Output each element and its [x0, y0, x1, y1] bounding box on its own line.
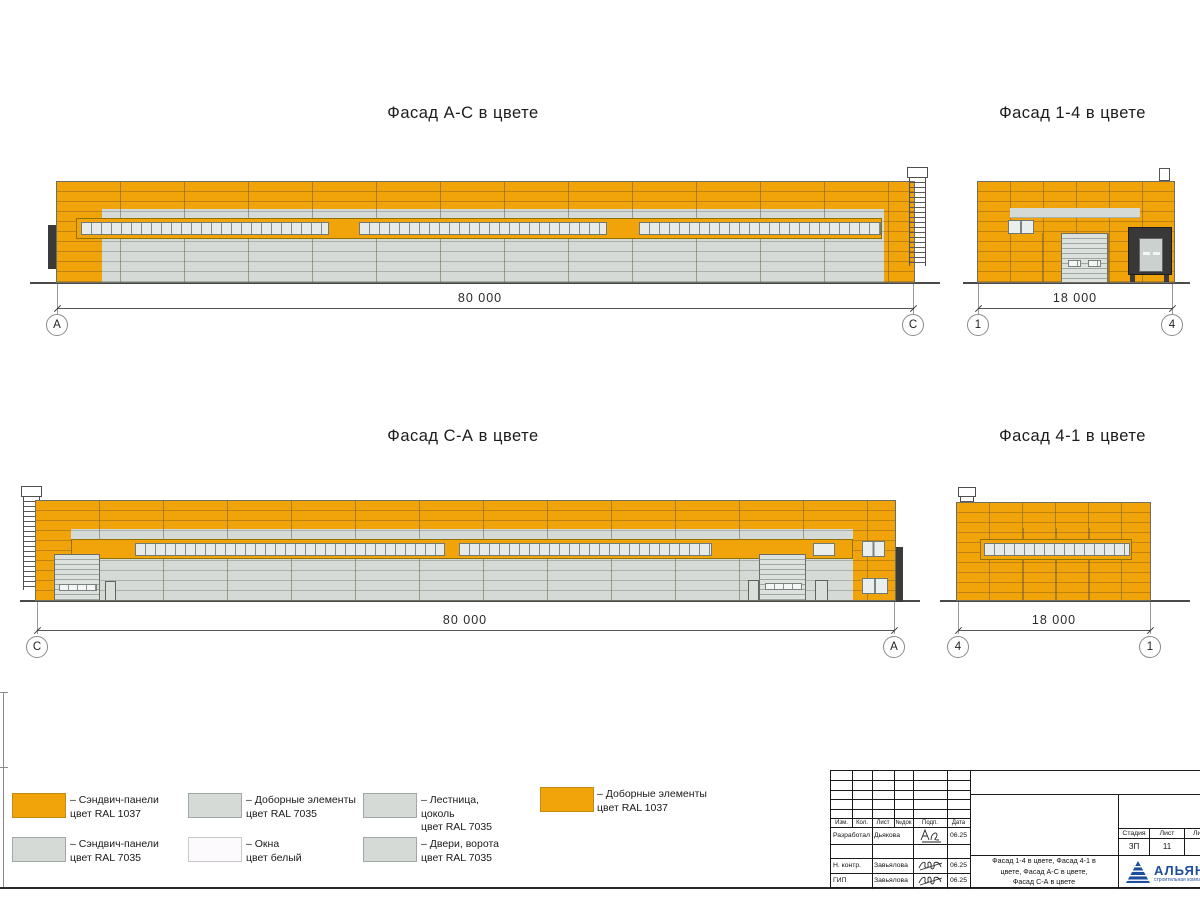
gray-trim-band	[1010, 208, 1140, 218]
legend-label: – Сэндвич-панели цвет RAL 1037	[70, 794, 159, 821]
signature	[917, 874, 945, 887]
tb-name: Завьялова	[874, 874, 912, 887]
window	[1008, 220, 1034, 234]
tb-sheet-header: Лист	[1150, 828, 1184, 838]
axis-marker-4: 4	[1161, 314, 1183, 336]
title-block: Изм. Кол. Лист №док Подп. Дата Разработа…	[830, 770, 1200, 888]
gate-window	[1088, 260, 1101, 267]
legend-label: – Двери, ворота цвет RAL 7035	[421, 838, 499, 865]
ribbon-windows-group	[135, 543, 445, 556]
legend-swatch-sandwich-ral1037	[12, 793, 66, 818]
tb-stage-header: Стадия	[1119, 828, 1149, 838]
axis-marker-1: 1	[1139, 636, 1161, 658]
axis-marker-c: С	[902, 314, 924, 336]
tb-name: Завьялова	[874, 859, 912, 872]
signature	[917, 859, 945, 872]
facade-14-title: Фасад 1-4 в цвете	[950, 104, 1195, 123]
dimension-text-14: 18 000	[1015, 291, 1135, 305]
signature	[917, 828, 945, 843]
dock-shelter	[1128, 227, 1172, 275]
tb-date: 06.25	[947, 859, 970, 872]
legend-swatch-windows-white	[188, 837, 242, 862]
tb-date: 06.25	[947, 874, 970, 887]
facade-14-building	[977, 181, 1175, 283]
tb-sheet-value: 11	[1150, 839, 1184, 853]
alliance-logo-icon	[1126, 861, 1150, 883]
dimension-text-41: 18 000	[994, 613, 1114, 627]
dock-door-slat	[1153, 252, 1160, 255]
window-ribbon-band	[71, 539, 853, 559]
ribbon-windows-group	[459, 543, 712, 556]
tb-stage-value: ЗП	[1119, 839, 1149, 853]
facade-ac-building	[56, 181, 915, 283]
legend-label: – Окна цвет белый	[246, 838, 302, 865]
tb-header-ndok: №док	[894, 818, 913, 827]
gate-window	[1068, 260, 1081, 267]
alliance-logo-subtitle: строительная компания	[1154, 877, 1200, 883]
shelter-foot	[1164, 275, 1169, 283]
dimension-line-14	[978, 308, 1172, 309]
dimension-line-ac	[57, 308, 914, 309]
axis-marker-a: А	[46, 314, 68, 336]
tb-role: ГИП	[833, 874, 872, 887]
window-ribbon-band	[76, 218, 882, 239]
facade-41-building	[956, 502, 1151, 601]
tb-role: Разработал	[833, 829, 872, 842]
legend-swatch-doors-ral7035	[363, 837, 417, 862]
legend-label: – Лестница, цоколь цвет RAL 7035	[421, 794, 492, 835]
dock-door	[1139, 238, 1163, 272]
legend-label: – Доборные элементы цвет RAL 1037	[597, 788, 707, 815]
legend-swatch-trim-ral1037	[540, 787, 594, 812]
tb-name: Дьякова	[874, 829, 912, 842]
tb-date: 06.25	[947, 829, 970, 842]
legend-swatch-sandwich-ral7035	[12, 837, 66, 862]
sheet-frame-tick	[0, 692, 8, 693]
roof-ladder-top	[958, 487, 976, 497]
tb-sheets-header: Листов	[1185, 828, 1200, 838]
tb-header-podp: Подп.	[913, 818, 947, 827]
ribbon-windows-group	[359, 222, 607, 235]
tb-role: Н. контр.	[833, 859, 872, 872]
dimension-line-ca	[37, 630, 894, 631]
single-window	[813, 543, 835, 556]
ribbon-windows-group	[81, 222, 329, 235]
shelter-foot	[1130, 275, 1135, 283]
gate-window-row	[59, 584, 97, 591]
sectional-gate	[1061, 233, 1108, 283]
drawing-sheet: Фасад А-С в цвете Фасад 1-4 в цвете Фаса…	[0, 0, 1200, 900]
ribbon-windows-group	[984, 543, 1130, 556]
roof-ladder-top	[907, 167, 928, 178]
door	[105, 581, 116, 601]
dock-shelter-side-ca	[896, 547, 903, 602]
tb-header-list: Лист	[872, 818, 894, 827]
facade-41-title: Фасад 4-1 в цвете	[950, 427, 1195, 446]
axis-marker-4: 4	[947, 636, 969, 658]
sheet-frame-left	[3, 693, 4, 888]
window-ribbon-band	[980, 539, 1132, 560]
axis-marker-c: С	[26, 636, 48, 658]
facade-ac-title: Фасад А-С в цвете	[313, 104, 613, 123]
axis-marker-a: А	[883, 636, 905, 658]
alliance-logo-text: АЛЬЯНС	[1154, 863, 1200, 878]
window	[862, 578, 888, 594]
dimension-text-ca: 80 000	[365, 613, 565, 627]
tb-doc-title: Фасад 1-4 в цвете, Фасад 4-1 в цвете, Фа…	[971, 856, 1117, 888]
sectional-gate-left	[54, 554, 100, 601]
tb-sheets-value: 1	[1185, 839, 1200, 853]
roof-vent	[1159, 168, 1170, 181]
gate-window-row	[765, 583, 802, 590]
legend-label: – Доборные элементы цвет RAL 7035	[246, 794, 356, 821]
sectional-gate-mid	[759, 554, 806, 601]
tb-header-kol: Кол.	[852, 818, 872, 827]
tb-header-data: Дата	[947, 818, 970, 827]
roof-ladder	[909, 178, 926, 266]
facade-ca-title: Фасад С-А в цвете	[313, 427, 613, 446]
door	[748, 580, 759, 601]
ribbon-windows-group	[639, 222, 881, 235]
roof-ladder-top	[21, 486, 42, 497]
tb-header-izm: Изм.	[831, 818, 852, 827]
axis-marker-1: 1	[967, 314, 989, 336]
door	[815, 580, 828, 601]
legend-swatch-trim-ral7035	[188, 793, 242, 818]
window	[862, 541, 885, 557]
sheet-frame-tick	[0, 767, 8, 768]
facade-ca-building	[35, 500, 896, 601]
legend-swatch-ladder-ral7035	[363, 793, 417, 818]
dimension-text-ac: 80 000	[380, 291, 580, 305]
dock-door-slat	[1143, 252, 1150, 255]
legend-label: – Сэндвич-панели цвет RAL 7035	[70, 838, 159, 865]
dimension-line-41	[958, 630, 1150, 631]
